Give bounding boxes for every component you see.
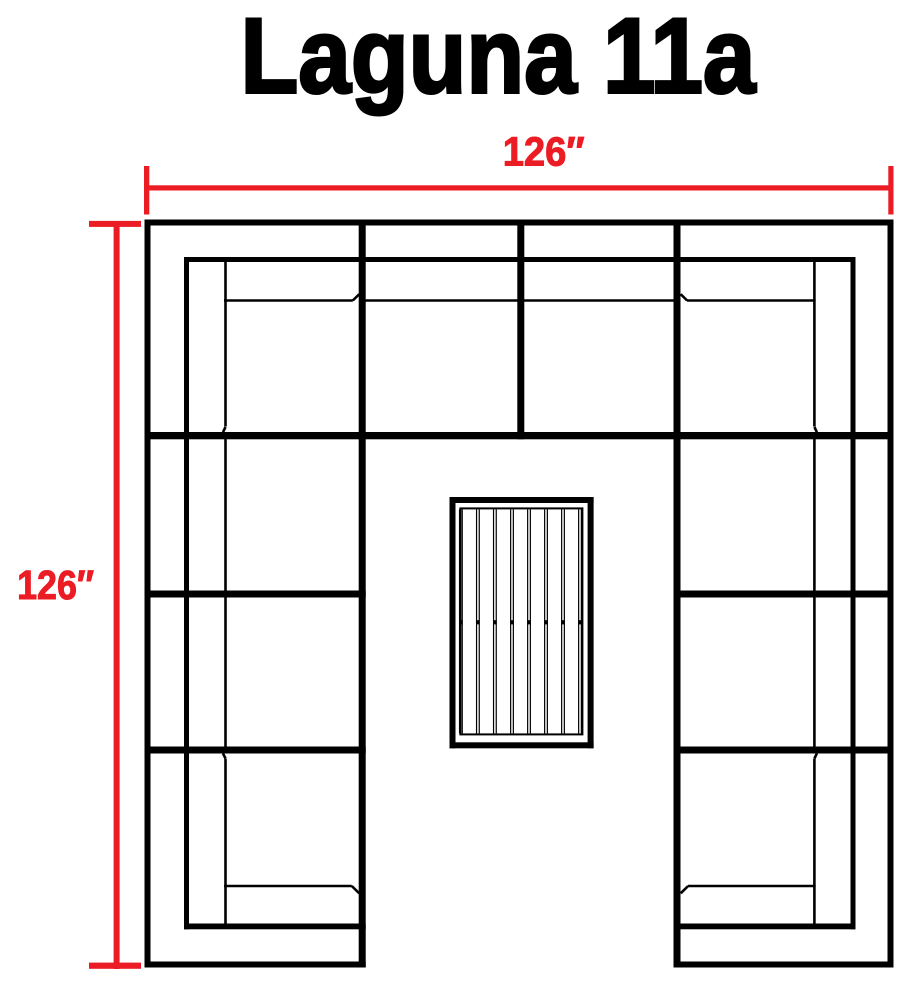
svg-text:126″: 126″ [503,129,585,175]
svg-text:126″: 126″ [17,562,94,608]
svg-text:Laguna 11a: Laguna 11a [241,0,757,116]
